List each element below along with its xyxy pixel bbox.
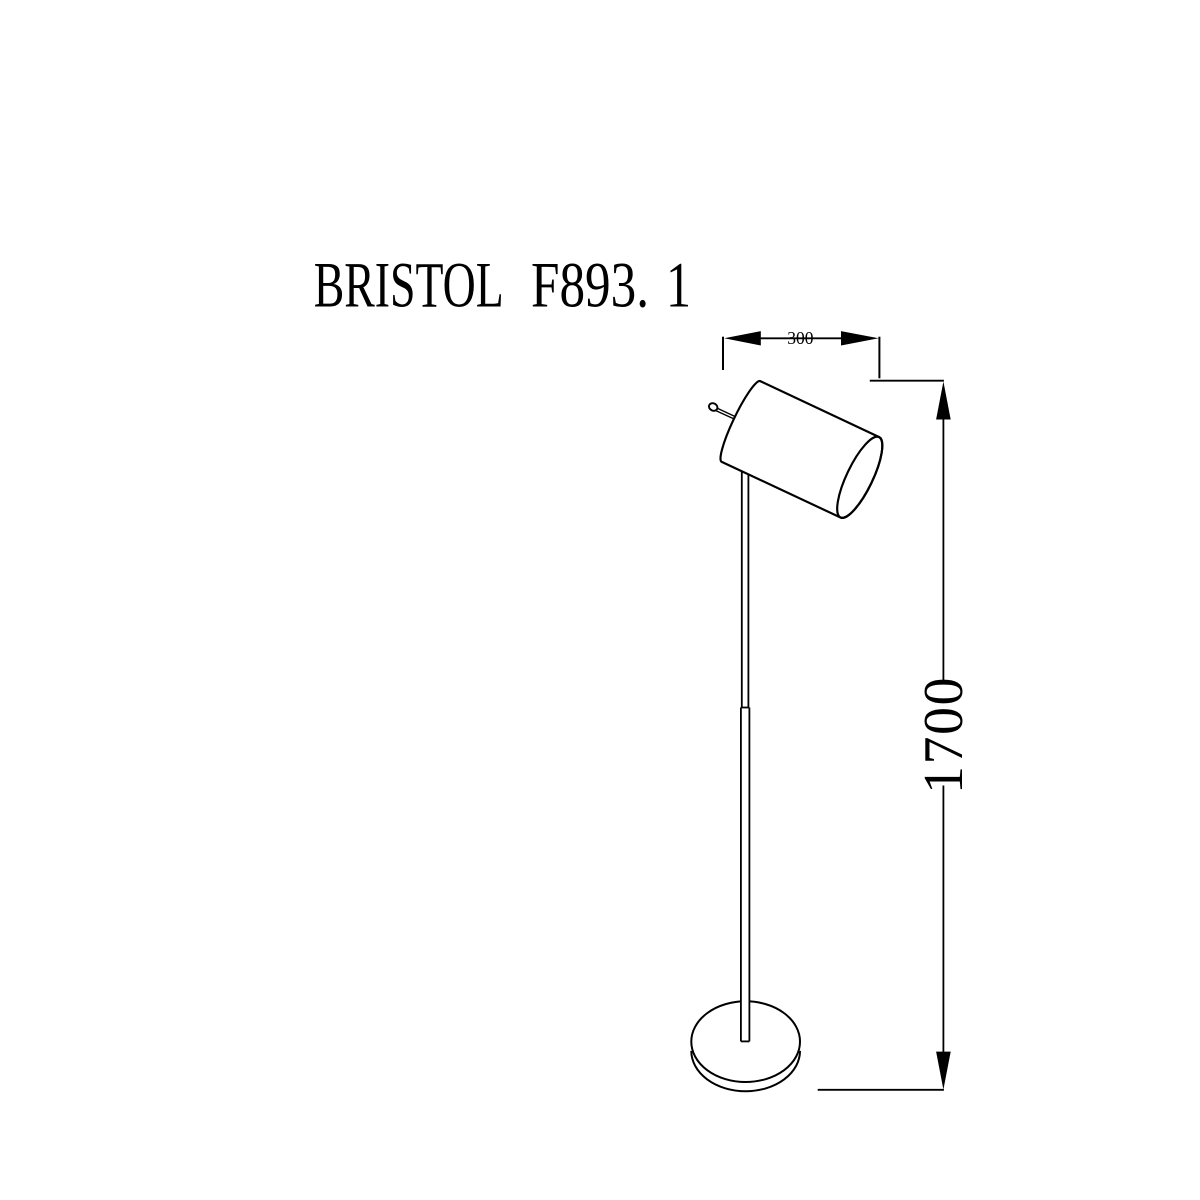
svg-text:BRISTOL: BRISTOL bbox=[314, 250, 504, 321]
svg-text:F893.: F893. bbox=[531, 250, 649, 321]
svg-text:1: 1 bbox=[666, 250, 691, 321]
svg-text:300: 300 bbox=[787, 328, 814, 348]
svg-text:1700: 1700 bbox=[913, 676, 975, 794]
